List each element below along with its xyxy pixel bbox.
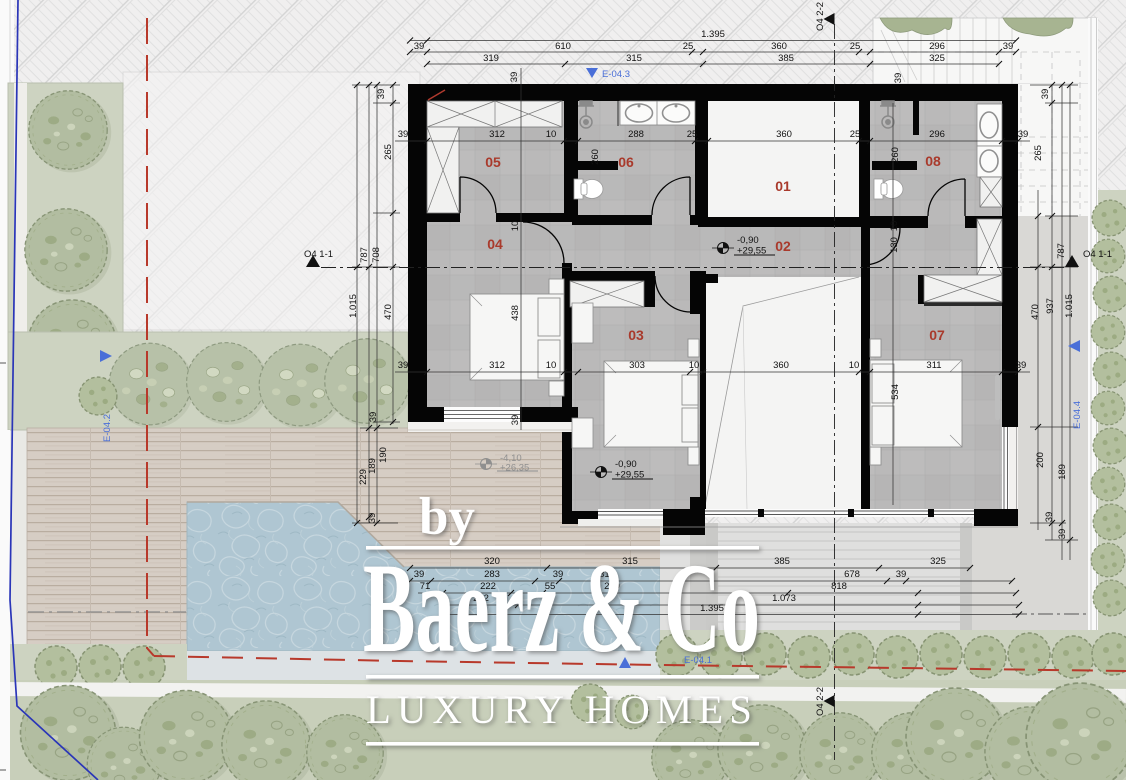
svg-text:O4 1-1: O4 1-1	[1083, 249, 1112, 260]
svg-text:296: 296	[929, 41, 945, 52]
svg-text:319: 319	[483, 53, 499, 64]
svg-text:470: 470	[383, 304, 394, 320]
svg-text:787: 787	[359, 247, 370, 263]
svg-text:311: 311	[926, 360, 941, 371]
svg-text:1.073: 1.073	[772, 593, 796, 604]
svg-text:190: 190	[378, 447, 389, 463]
svg-text:-0,90: -0,90	[737, 235, 759, 246]
svg-text:360: 360	[771, 41, 787, 52]
svg-text:39: 39	[368, 412, 379, 423]
svg-text:03: 03	[628, 327, 644, 343]
svg-text:O4 2-2: O4 2-2	[815, 687, 826, 716]
svg-text:LUXURY HOMES: LUXURY HOMES	[366, 687, 758, 732]
svg-text:315: 315	[626, 53, 642, 64]
svg-text:06: 06	[618, 154, 634, 170]
svg-text:39: 39	[1016, 360, 1027, 371]
svg-text:818: 818	[831, 581, 847, 592]
svg-text:10: 10	[546, 360, 557, 371]
svg-text:610: 610	[555, 41, 571, 52]
svg-text:39: 39	[414, 41, 425, 52]
svg-text:10: 10	[849, 360, 860, 371]
svg-text:08: 08	[925, 153, 941, 169]
svg-text:-0,90: -0,90	[615, 459, 637, 470]
svg-text:39: 39	[1057, 529, 1068, 540]
svg-text:10: 10	[510, 221, 521, 232]
svg-text:260: 260	[890, 147, 901, 163]
svg-text:1.015: 1.015	[348, 294, 359, 318]
svg-text:325: 325	[930, 556, 946, 567]
svg-text:+26,35: +26,35	[500, 463, 529, 474]
svg-text:385: 385	[774, 556, 790, 567]
svg-text:937: 937	[1045, 298, 1056, 314]
svg-text:O4 2-2: O4 2-2	[815, 2, 826, 31]
svg-text:189: 189	[1057, 464, 1068, 480]
svg-text:39: 39	[1040, 89, 1051, 100]
svg-text:288: 288	[628, 129, 644, 140]
svg-text:+29,55: +29,55	[615, 470, 644, 481]
svg-text:Baerz & Co: Baerz & Co	[363, 537, 760, 679]
svg-text:39: 39	[376, 89, 387, 100]
svg-text:265: 265	[383, 144, 394, 160]
svg-text:04: 04	[487, 236, 503, 252]
svg-text:25: 25	[850, 41, 861, 52]
svg-text:02: 02	[775, 238, 791, 254]
svg-text:E-04.2: E-04.2	[102, 414, 113, 442]
svg-text:39: 39	[510, 415, 521, 426]
svg-text:130: 130	[889, 237, 900, 253]
svg-text:385: 385	[778, 53, 794, 64]
svg-text:10: 10	[546, 129, 557, 140]
svg-text:312: 312	[489, 129, 505, 140]
svg-text:189: 189	[367, 458, 378, 474]
svg-text:787: 787	[1056, 243, 1067, 259]
svg-text:07: 07	[929, 327, 945, 343]
svg-text:303: 303	[629, 360, 645, 371]
svg-text:39: 39	[1018, 129, 1029, 140]
svg-text:O4 1-1: O4 1-1	[304, 249, 333, 260]
svg-text:312: 312	[489, 360, 505, 371]
svg-text:470: 470	[1030, 304, 1041, 320]
svg-text:39: 39	[896, 569, 907, 580]
svg-text:25: 25	[850, 129, 861, 140]
svg-text:678: 678	[844, 569, 860, 580]
svg-text:05: 05	[485, 154, 501, 170]
svg-text:200: 200	[1035, 452, 1046, 468]
svg-text:10: 10	[689, 360, 700, 371]
svg-text:E-04.4: E-04.4	[1072, 401, 1083, 429]
svg-text:25: 25	[687, 129, 698, 140]
svg-text:39: 39	[398, 129, 409, 140]
svg-text:39: 39	[509, 72, 520, 83]
svg-text:360: 360	[773, 360, 789, 371]
svg-text:265: 265	[1033, 145, 1044, 161]
svg-text:39: 39	[1003, 41, 1014, 52]
svg-text:1.015: 1.015	[1064, 294, 1075, 318]
svg-text:296: 296	[929, 129, 945, 140]
svg-text:325: 325	[929, 53, 945, 64]
svg-text:+29,55: +29,55	[737, 246, 766, 257]
svg-text:1.395: 1.395	[701, 29, 725, 40]
svg-text:39: 39	[367, 513, 378, 524]
svg-text:708: 708	[371, 247, 382, 263]
svg-text:01: 01	[775, 178, 791, 194]
svg-text:39: 39	[398, 360, 409, 371]
svg-text:10: 10	[889, 221, 900, 232]
svg-text:25: 25	[683, 41, 694, 52]
svg-text:39: 39	[893, 73, 904, 84]
svg-text:E-04.3: E-04.3	[602, 69, 630, 80]
svg-text:39: 39	[1044, 512, 1055, 523]
svg-text:260: 260	[590, 149, 601, 165]
svg-text:534: 534	[890, 384, 901, 400]
svg-text:360: 360	[776, 129, 792, 140]
svg-text:438: 438	[510, 305, 521, 321]
